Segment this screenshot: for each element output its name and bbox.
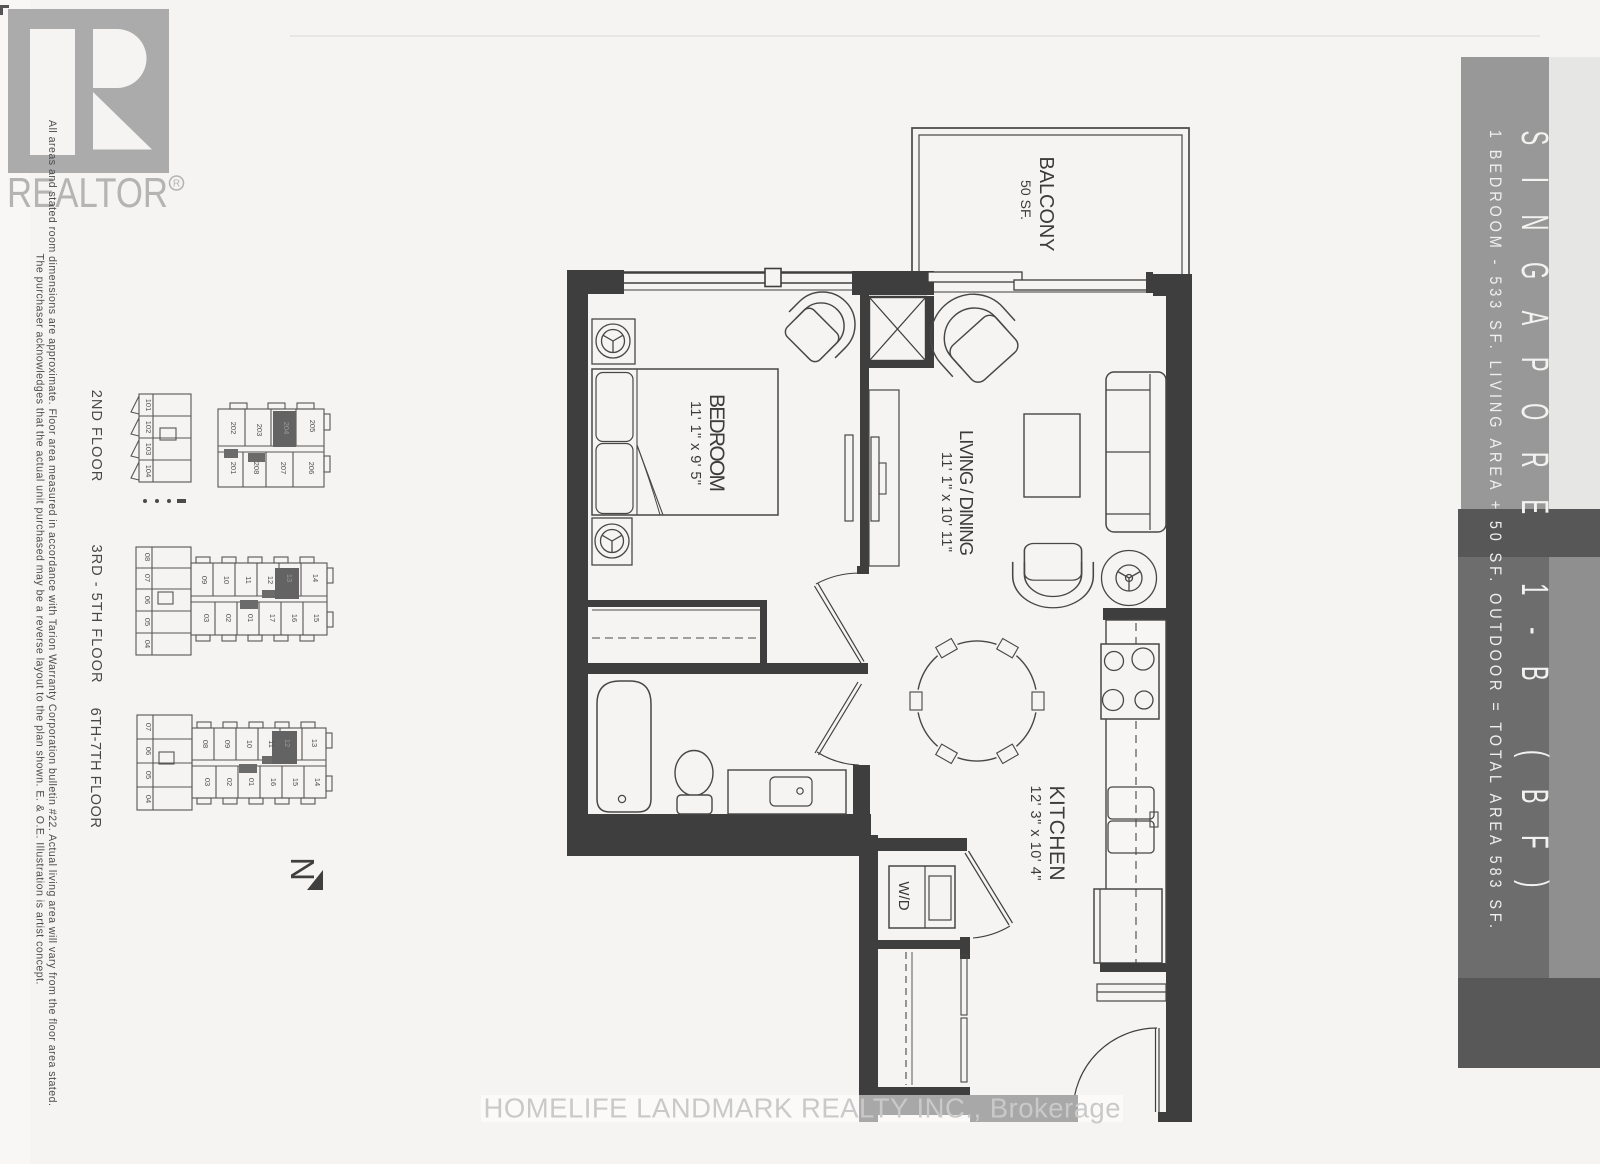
svg-text:203: 203 <box>255 424 264 437</box>
svg-text:202: 202 <box>229 422 238 435</box>
svg-text:02: 02 <box>224 614 233 622</box>
svg-text:07: 07 <box>144 723 153 731</box>
svg-text:12: 12 <box>266 576 275 584</box>
svg-text:N: N <box>284 857 321 881</box>
svg-text:206: 206 <box>307 462 316 475</box>
svg-text:01: 01 <box>247 778 256 786</box>
svg-text:11: 11 <box>267 740 276 748</box>
svg-text:03: 03 <box>202 614 211 622</box>
svg-text:BEDROOM: BEDROOM <box>705 394 728 492</box>
svg-text:17: 17 <box>268 614 277 622</box>
svg-text:08: 08 <box>201 740 210 748</box>
svg-text:KITCHEN: KITCHEN <box>1045 786 1068 881</box>
svg-text:07: 07 <box>143 574 152 582</box>
svg-text:10: 10 <box>245 740 254 748</box>
svg-text:13: 13 <box>285 574 294 582</box>
svg-text:04: 04 <box>144 795 153 803</box>
svg-text:05: 05 <box>143 618 152 626</box>
svg-text:02: 02 <box>225 778 234 786</box>
svg-text:207: 207 <box>279 462 288 475</box>
svg-text:205: 205 <box>308 420 317 433</box>
svg-text:06: 06 <box>143 596 152 604</box>
svg-text:201: 201 <box>229 462 238 475</box>
svg-text:11' 1" x 9' 5": 11' 1" x 9' 5" <box>687 401 703 485</box>
svg-text:104: 104 <box>144 465 153 478</box>
svg-text:101: 101 <box>144 399 153 412</box>
svg-text:09: 09 <box>200 576 209 584</box>
svg-text:The purchaser acknowledges tha: The purchaser acknowledges that the actu… <box>34 254 46 985</box>
svg-text:04: 04 <box>143 640 152 648</box>
svg-text:13: 13 <box>310 739 319 747</box>
svg-text:R: R <box>173 179 180 190</box>
svg-text:15: 15 <box>291 778 300 786</box>
svg-text:BALCONY: BALCONY <box>1035 157 1057 252</box>
svg-text:14: 14 <box>311 574 320 582</box>
svg-text:204: 204 <box>282 422 291 435</box>
svg-text:11' 1" x 10' 11": 11' 1" x 10' 11" <box>938 452 954 552</box>
svg-text:REALTOR: REALTOR <box>7 169 168 216</box>
svg-text:12: 12 <box>283 739 292 747</box>
svg-text:All areas and stated room dime: All areas and stated room dimensions are… <box>46 120 58 1106</box>
svg-text:03: 03 <box>203 778 212 786</box>
svg-text:16: 16 <box>269 778 278 786</box>
svg-text:09: 09 <box>223 740 232 748</box>
svg-text:2ND FLOOR: 2ND FLOOR <box>88 390 104 483</box>
svg-text:103: 103 <box>144 443 153 456</box>
svg-text:05: 05 <box>144 771 153 779</box>
svg-text:14: 14 <box>313 778 322 786</box>
svg-text:102: 102 <box>144 421 153 434</box>
svg-text:11: 11 <box>244 576 253 584</box>
svg-text:16: 16 <box>290 614 299 622</box>
svg-text:08: 08 <box>143 553 152 561</box>
svg-text:LIVING / DINING: LIVING / DINING <box>956 430 977 556</box>
svg-text:10: 10 <box>222 576 231 584</box>
svg-text:HOMELIFE LANDMARK REALTY INC.,: HOMELIFE LANDMARK REALTY INC., Brokerage <box>484 1093 1121 1124</box>
svg-text:15: 15 <box>312 614 321 622</box>
svg-text:W/D: W/D <box>895 881 912 910</box>
svg-text:12' 3" x 10' 4": 12' 3" x 10' 4" <box>1027 786 1043 881</box>
svg-text:06: 06 <box>144 747 153 755</box>
svg-text:50 SF.: 50 SF. <box>1018 180 1034 220</box>
svg-text:6TH-7TH FLOOR: 6TH-7TH FLOOR <box>87 708 103 829</box>
svg-text:3RD - 5TH FLOOR: 3RD - 5TH FLOOR <box>88 544 104 683</box>
svg-text:01: 01 <box>246 614 255 622</box>
svg-text:208: 208 <box>252 462 261 475</box>
